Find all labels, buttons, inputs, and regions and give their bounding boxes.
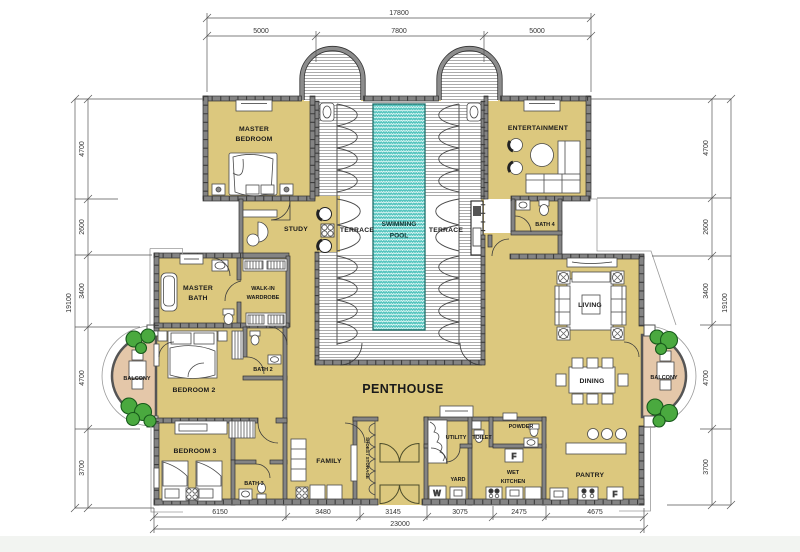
svg-text:F: F: [512, 452, 517, 461]
svg-text:SHOES / STORAGE: SHOES / STORAGE: [365, 437, 370, 479]
svg-text:2475: 2475: [511, 509, 527, 516]
svg-text:DINING: DINING: [580, 378, 605, 385]
svg-text:5000: 5000: [529, 28, 545, 35]
svg-text:4700: 4700: [79, 141, 86, 157]
svg-text:3075: 3075: [452, 509, 468, 516]
svg-text:4700: 4700: [703, 140, 710, 156]
svg-text:WALK-IN: WALK-IN: [251, 286, 275, 292]
svg-text:3700: 3700: [703, 459, 710, 475]
svg-text:UTILITY: UTILITY: [446, 435, 467, 441]
svg-text:TERRACE: TERRACE: [429, 227, 464, 234]
svg-text:PENTHOUSE: PENTHOUSE: [362, 382, 443, 396]
svg-text:5000: 5000: [253, 28, 269, 35]
svg-text:TOILET: TOILET: [472, 435, 492, 441]
svg-text:MASTER: MASTER: [239, 126, 269, 133]
svg-text:ENTERTAINMENT: ENTERTAINMENT: [508, 125, 569, 132]
svg-text:KITCHEN: KITCHEN: [501, 479, 525, 485]
svg-text:BATH 4: BATH 4: [535, 222, 555, 228]
svg-text:TERRACE: TERRACE: [340, 227, 375, 234]
svg-text:BALCONY: BALCONY: [650, 375, 678, 381]
svg-text:7800: 7800: [391, 28, 407, 35]
svg-text:PANTRY: PANTRY: [576, 472, 605, 479]
svg-text:6150: 6150: [212, 509, 228, 516]
svg-text:POWDER: POWDER: [509, 424, 534, 430]
svg-text:BATH 2: BATH 2: [253, 367, 272, 373]
svg-text:BATH: BATH: [188, 295, 207, 302]
svg-text:MASTER: MASTER: [183, 285, 213, 292]
svg-text:17800: 17800: [389, 10, 409, 17]
svg-text:BEDROOM 3: BEDROOM 3: [174, 448, 217, 455]
svg-text:3480: 3480: [315, 509, 331, 516]
svg-text:BATH 3: BATH 3: [244, 481, 263, 487]
svg-text:19100: 19100: [722, 293, 729, 313]
svg-text:BEDROOM: BEDROOM: [236, 136, 273, 143]
svg-text:BALCONY: BALCONY: [123, 376, 151, 382]
svg-text:POOL: POOL: [390, 233, 408, 240]
svg-text:BEDROOM 2: BEDROOM 2: [173, 387, 216, 394]
svg-text:23000: 23000: [390, 521, 410, 528]
svg-text:WARDROBE: WARDROBE: [247, 295, 280, 301]
svg-text:4675: 4675: [587, 509, 603, 516]
svg-text:YARD: YARD: [450, 477, 465, 483]
svg-text:WET: WET: [507, 470, 520, 476]
svg-text:SWIMMING: SWIMMING: [382, 221, 417, 228]
svg-text:W: W: [433, 489, 441, 498]
svg-text:STUDY: STUDY: [284, 226, 308, 233]
svg-text:3400: 3400: [703, 283, 710, 299]
svg-text:4700: 4700: [703, 370, 710, 386]
svg-text:4700: 4700: [79, 370, 86, 386]
svg-text:3400: 3400: [79, 283, 86, 299]
svg-text:LIVING: LIVING: [578, 302, 602, 309]
svg-text:FAMILY: FAMILY: [316, 458, 342, 465]
svg-text:19100: 19100: [66, 293, 73, 313]
svg-text:F: F: [613, 490, 618, 499]
svg-text:2600: 2600: [79, 219, 86, 235]
svg-text:3700: 3700: [79, 460, 86, 476]
svg-text:3145: 3145: [385, 509, 401, 516]
svg-text:2600: 2600: [703, 219, 710, 235]
